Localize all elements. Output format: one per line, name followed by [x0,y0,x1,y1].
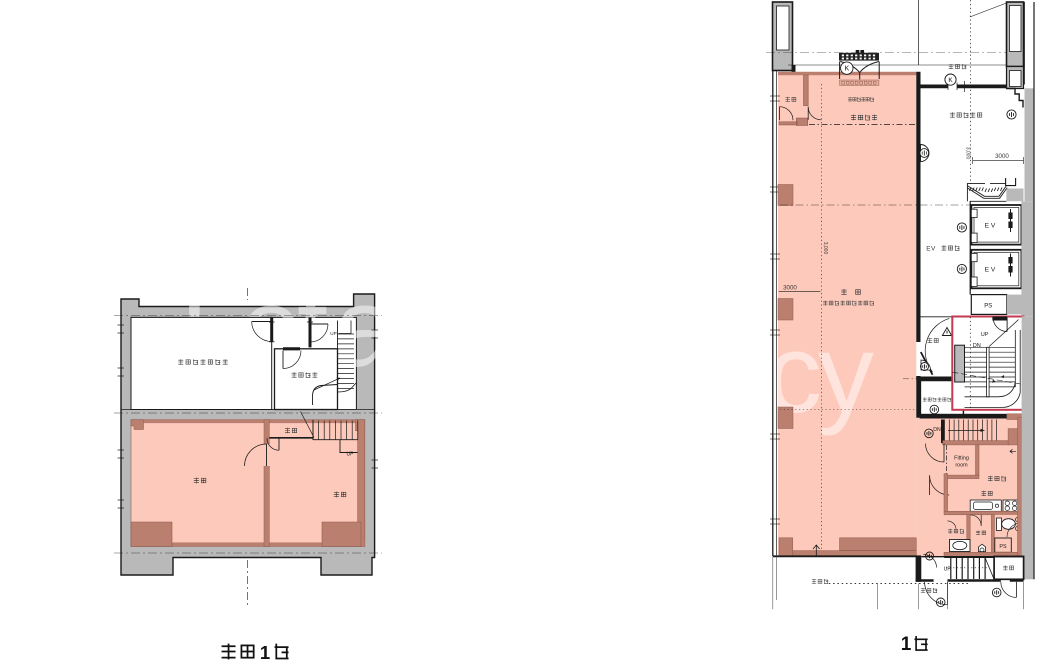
svg-text:E V: E V [985,223,996,230]
svg-text:K: K [844,66,849,73]
svg-text:E V: E V [985,267,996,274]
svg-text:1: 1 [901,634,912,655]
svg-text:UP: UP [944,566,952,572]
svg-text:3,000: 3,000 [822,242,828,255]
svg-text:EV: EV [926,246,936,253]
svg-text:DN: DN [973,343,981,349]
svg-text:DN: DN [933,427,941,433]
svg-text:1: 1 [260,642,270,663]
svg-text:Fitting: Fitting [954,456,969,462]
svg-text:3000: 3000 [995,153,1009,160]
svg-text:y: y [818,311,874,436]
svg-text:3,000: 3,000 [965,147,971,160]
svg-text:UP: UP [981,332,989,338]
svg-text:a: a [334,265,397,390]
svg-text:K: K [948,77,953,84]
svg-text:3000: 3000 [783,285,797,292]
svg-text:PS: PS [999,544,1007,550]
svg-text:PS: PS [984,304,992,310]
svg-text:UP: UP [330,331,336,336]
svg-text:UP: UP [347,452,355,458]
svg-text:room: room [955,463,968,469]
